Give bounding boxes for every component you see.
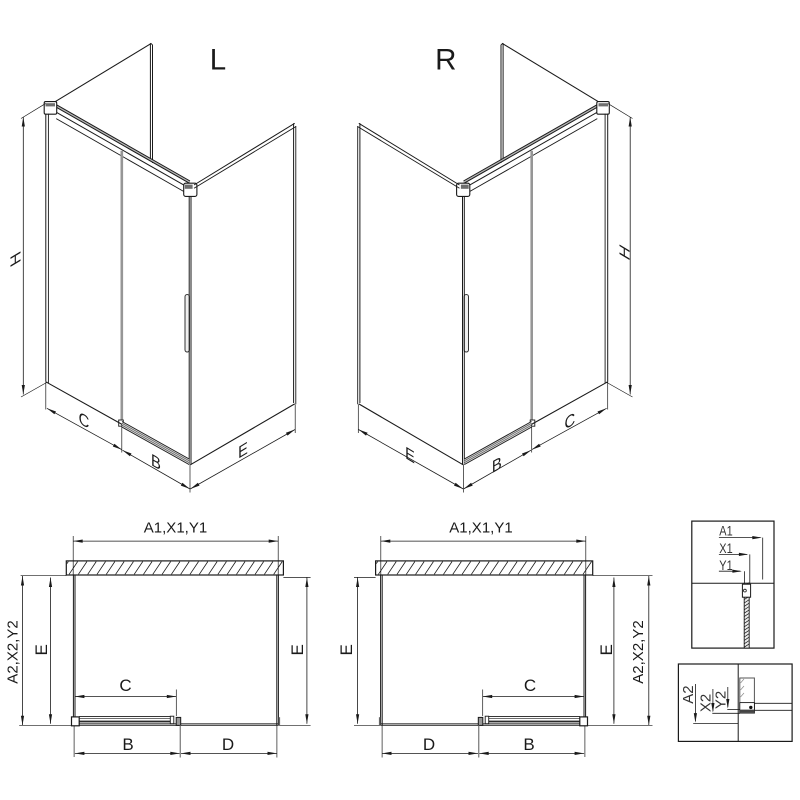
svg-text:A1,X1,Y1: A1,X1,Y1: [449, 520, 512, 537]
svg-text:A1,X1,Y1: A1,X1,Y1: [144, 520, 207, 537]
svg-text:E: E: [597, 644, 616, 655]
svg-text:A2: A2: [680, 685, 697, 703]
svg-text:X1: X1: [719, 541, 732, 556]
svg-text:D: D: [423, 735, 435, 754]
svg-text:R: R: [435, 44, 456, 77]
svg-text:E: E: [32, 644, 51, 655]
svg-text:A2,X2,Y2: A2,X2,Y2: [630, 620, 647, 683]
svg-text:C: C: [524, 676, 536, 695]
svg-text:Y1: Y1: [719, 558, 732, 573]
svg-text:L: L: [210, 44, 226, 77]
svg-text:A2,X2,Y2: A2,X2,Y2: [5, 620, 22, 683]
svg-text:E: E: [337, 644, 356, 655]
svg-text:E: E: [288, 644, 307, 655]
svg-text:B: B: [523, 735, 534, 754]
svg-text:B: B: [122, 735, 133, 754]
svg-text:D: D: [222, 735, 234, 754]
svg-text:A1: A1: [719, 524, 732, 539]
svg-text:C: C: [119, 676, 131, 695]
